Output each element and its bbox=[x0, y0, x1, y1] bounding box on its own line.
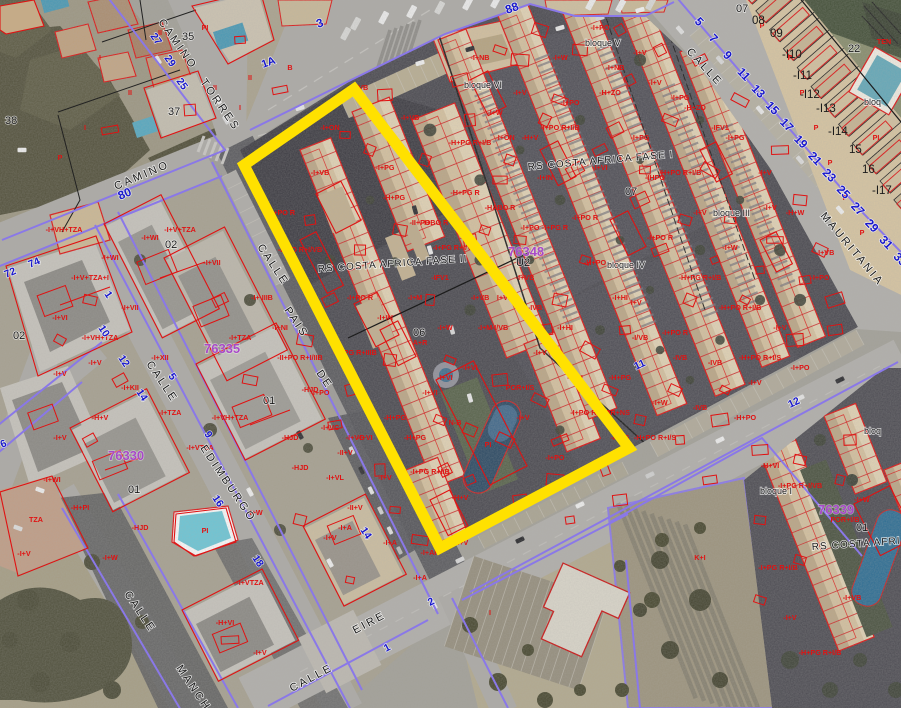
svg-text:-H+PG R+I/B: -H+PG R+I/B bbox=[799, 648, 842, 657]
svg-text:-I+V: -I+V bbox=[533, 348, 547, 357]
svg-text:-H+V: -H+V bbox=[452, 493, 469, 502]
svg-text:-I/VB: -I/VB bbox=[492, 323, 508, 332]
svg-text:TZA: TZA bbox=[29, 515, 43, 524]
svg-text:-I+NB: -I+NB bbox=[471, 53, 490, 62]
svg-text:-I+W: -I+W bbox=[487, 108, 503, 117]
svg-text:-I+V: -I+V bbox=[17, 549, 31, 558]
svg-text:-H+PO R+I/S: -H+PO R+I/S bbox=[634, 433, 677, 442]
svg-text:I: I bbox=[489, 608, 491, 617]
svg-text:-I+VI: -I+VI bbox=[357, 433, 372, 442]
svg-text:76335: 76335 bbox=[204, 341, 240, 356]
svg-text:-I+HI: -I+HI bbox=[612, 293, 628, 302]
svg-text:-H+PG R: -H+PG R bbox=[450, 188, 480, 197]
svg-text:-H+VI: -H+VI bbox=[761, 461, 780, 470]
svg-text:-I+PG: -I+PG bbox=[631, 133, 650, 142]
svg-text:-H+PO R+I/B: -H+PO R+I/B bbox=[719, 303, 762, 312]
svg-text:-I+W: -I+W bbox=[722, 243, 738, 252]
svg-text:16: 16 bbox=[862, 164, 875, 176]
svg-text:-I10: -I10 bbox=[782, 49, 802, 61]
svg-text:-H+PG: -H+PG bbox=[609, 373, 632, 382]
svg-text:-I+PO: -I+PO bbox=[561, 98, 580, 107]
svg-text:bloque I: bloque I bbox=[760, 486, 792, 496]
svg-text:-II+V: -II+V bbox=[337, 448, 353, 457]
svg-text:-I+W: -I+W bbox=[552, 53, 568, 62]
svg-text:-HJD: -HJD bbox=[292, 463, 309, 472]
svg-text:-I+PO R: -I+PO R bbox=[647, 233, 674, 242]
svg-text:02: 02 bbox=[165, 239, 177, 251]
svg-text:-I+VI: -I+VI bbox=[52, 313, 67, 322]
svg-text:-I+V: -I+V bbox=[693, 208, 707, 217]
svg-text:-HJD: -HJD bbox=[302, 385, 319, 394]
svg-text:-I+W: -I+W bbox=[854, 495, 870, 504]
svg-text:-I+W: -I+W bbox=[437, 323, 453, 332]
svg-text:38: 38 bbox=[5, 115, 17, 127]
svg-text:-I+V: -I+V bbox=[513, 88, 527, 97]
svg-text:-I+M: -I+M bbox=[408, 293, 423, 302]
svg-text:-I13: -I13 bbox=[816, 103, 836, 115]
svg-text:-H+PO: -H+PO bbox=[734, 413, 757, 422]
svg-text:-I+PO R: -I+PO R bbox=[662, 328, 689, 337]
svg-text:-I+VB: -I+VB bbox=[311, 168, 330, 177]
svg-text:-I+V+TZA+I: -I+V+TZA+I bbox=[71, 273, 109, 282]
svg-text:06: 06 bbox=[413, 327, 425, 339]
svg-text:-H+ZO: -H+ZO bbox=[599, 88, 621, 97]
svg-text:-I+VB: -I+VB bbox=[401, 113, 420, 122]
svg-text:-I+VI: -I+VI bbox=[462, 363, 477, 372]
svg-text:-I+PG: -I+PG bbox=[671, 93, 690, 102]
svg-text:76348: 76348 bbox=[508, 244, 544, 259]
svg-text:-I+VI: -I+VI bbox=[422, 388, 437, 397]
svg-text:08: 08 bbox=[752, 15, 765, 27]
svg-text:-I+V: -I+V bbox=[53, 433, 67, 442]
svg-text:-I+V: -I+V bbox=[748, 378, 762, 387]
svg-text:-I+PO: -I+PO bbox=[811, 273, 830, 282]
svg-text:-I+BO R: -I+BO R bbox=[422, 218, 449, 227]
svg-text:-I11: -I11 bbox=[793, 70, 812, 82]
svg-text:-I+PO: -I+PO bbox=[521, 223, 540, 232]
svg-text:02: 02 bbox=[13, 330, 25, 342]
svg-text:-I+PG: -I+PG bbox=[376, 163, 395, 172]
svg-text:-I+V: -I+V bbox=[88, 358, 102, 367]
svg-text:bloq: bloq bbox=[864, 426, 881, 436]
svg-text:-I+PG: -I+PG bbox=[726, 133, 745, 142]
svg-text:01: 01 bbox=[128, 484, 140, 496]
svg-text:-I+NI: -I+NI bbox=[272, 323, 288, 332]
svg-text:-I+V: -I+V bbox=[633, 48, 647, 57]
svg-text:-I+V: -I+V bbox=[758, 168, 772, 177]
svg-text:-I+W: -I+W bbox=[652, 398, 668, 407]
svg-text:I: I bbox=[84, 123, 86, 132]
svg-text:K+I: K+I bbox=[694, 553, 705, 562]
svg-text:-H+PG: -H+PG bbox=[384, 413, 407, 422]
svg-text:-I+V+TZA: -I+V+TZA bbox=[164, 225, 196, 234]
svg-text:-H+PO R+I/B: -H+PO R+I/B bbox=[659, 168, 702, 177]
svg-text:-I+ IIIB: -I+ IIIB bbox=[251, 293, 273, 302]
svg-text:07: 07 bbox=[736, 3, 748, 15]
svg-text:bloque VI: bloque VI bbox=[464, 80, 502, 90]
svg-text:bloque III: bloque III bbox=[713, 208, 750, 218]
svg-text:PI: PI bbox=[873, 133, 880, 142]
svg-text:bloq: bloq bbox=[864, 97, 881, 107]
svg-text:35: 35 bbox=[182, 31, 194, 43]
svg-text:-I+PG R+I/B: -I+PG R+I/B bbox=[410, 467, 450, 476]
svg-text:bloque V: bloque V bbox=[585, 38, 621, 48]
svg-text:-H+PG R+I/B: -H+PG R+I/B bbox=[679, 273, 722, 282]
svg-text:-I+VH+TZA: -I+VH+TZA bbox=[46, 225, 83, 234]
svg-text:-II+PO R+I/IIB: -II+PO R+I/IIB bbox=[277, 353, 323, 362]
svg-text:-I12: -I12 bbox=[800, 89, 820, 101]
svg-text:-I+VB: -I+VB bbox=[843, 593, 862, 602]
svg-text:-H+PG R+I/B: -H+PG R+I/B bbox=[449, 138, 492, 147]
svg-text:-I+KII: -I+KII bbox=[121, 383, 139, 392]
svg-text:09: 09 bbox=[770, 28, 783, 40]
svg-text:-I+WI: -I+WI bbox=[43, 475, 60, 484]
svg-text:-H+PI: -H+PI bbox=[71, 503, 90, 512]
svg-text:-IVB: -IVB bbox=[673, 353, 687, 362]
svg-text:-H+PO: -H+PO bbox=[584, 258, 607, 267]
svg-text:I: I bbox=[239, 103, 241, 112]
svg-text:-H+V: -H+V bbox=[92, 413, 109, 422]
svg-text:-I+IN: -I+IN bbox=[377, 313, 393, 322]
svg-text:15: 15 bbox=[849, 144, 862, 156]
svg-text:-IVB: -IVB bbox=[693, 403, 707, 412]
svg-text:-IFV1: -IFV1 bbox=[431, 273, 449, 282]
svg-text:-I+PO: -I+PO bbox=[791, 363, 810, 372]
svg-text:-I+V: -I+V bbox=[253, 648, 267, 657]
svg-text:-I+VII: -I+VII bbox=[121, 303, 138, 312]
svg-text:22: 22 bbox=[848, 43, 860, 55]
svg-text:37: 37 bbox=[168, 106, 180, 118]
svg-text:-I+V: -I+V bbox=[628, 298, 642, 307]
svg-text:-I+A: -I+A bbox=[338, 523, 352, 532]
svg-text:-IFV1: -IFV1 bbox=[711, 123, 729, 132]
svg-text:-I+VII: -I+VII bbox=[203, 258, 220, 267]
svg-text:PI: PI bbox=[485, 440, 492, 449]
svg-text:-I+WI: -I+WI bbox=[141, 233, 158, 242]
svg-text:-H+PO R+I/S: -H+PO R+I/S bbox=[739, 353, 782, 362]
svg-text:P: P bbox=[58, 153, 63, 162]
svg-text:-I+VH+TZA: -I+VH+TZA bbox=[212, 413, 249, 422]
svg-text:-HJD: -HJD bbox=[132, 523, 149, 532]
svg-text:N-B: N-B bbox=[449, 418, 462, 427]
svg-text:76339: 76339 bbox=[818, 502, 854, 517]
svg-text:-H+ZO: -H+ZO bbox=[684, 103, 706, 112]
svg-text:-I+TZA: -I+TZA bbox=[159, 408, 182, 417]
svg-text:-I+V: -I+V bbox=[783, 613, 797, 622]
svg-text:-I14: -I14 bbox=[828, 126, 848, 138]
svg-text:-H+W: -H+W bbox=[786, 208, 805, 217]
svg-text:POR+I/S: POR+I/S bbox=[506, 383, 535, 392]
svg-text:-I+V: -I+V bbox=[323, 533, 337, 542]
svg-text:-I+PG R: -I+PG R bbox=[542, 223, 569, 232]
svg-text:-I+VB: -I+VB bbox=[471, 293, 490, 302]
svg-text:01: 01 bbox=[856, 522, 868, 534]
svg-text:-I+VB: -I+VB bbox=[516, 273, 535, 282]
svg-text:-IVB: -IVB bbox=[708, 358, 722, 367]
svg-text:II: II bbox=[128, 88, 132, 97]
svg-text:-I+W: -I+W bbox=[102, 553, 118, 562]
svg-text:-I+HI: -I+HI bbox=[557, 323, 573, 332]
svg-text:-I+M: -I+M bbox=[478, 323, 493, 332]
svg-text:-I+VTZA: -I+VTZA bbox=[236, 578, 263, 587]
svg-text:-I+PO: -I+PO bbox=[591, 23, 610, 32]
svg-text:-I+WI: -I+WI bbox=[101, 253, 118, 262]
svg-text:-I17: -I17 bbox=[872, 185, 892, 197]
svg-text:-HJD: -HJD bbox=[282, 433, 299, 442]
svg-text:-I+A: -I+A bbox=[413, 573, 427, 582]
svg-text:B: B bbox=[287, 63, 292, 72]
svg-text:-I+VI: -I+VI bbox=[437, 373, 452, 382]
svg-text:-I+PG R+I/B: -I+PG R+I/B bbox=[758, 563, 798, 572]
svg-text:-I+PO R: -I+PO R bbox=[347, 293, 374, 302]
svg-text:-I+PO R+I/B: -I+PO R+I/B bbox=[540, 123, 580, 132]
svg-text:01: 01 bbox=[263, 395, 275, 407]
svg-text:-H+PG: -H+PG bbox=[383, 193, 406, 202]
svg-text:II: II bbox=[248, 73, 252, 82]
svg-text:-I+V: -I+V bbox=[763, 203, 777, 212]
svg-text:-II+V: -II+V bbox=[347, 503, 363, 512]
svg-text:PI: PI bbox=[202, 23, 209, 32]
svg-text:-I+ON: -I+ON bbox=[495, 133, 514, 142]
svg-text:-I+VL: -I+VL bbox=[326, 473, 344, 482]
svg-text:-I+A: -I+A bbox=[383, 538, 397, 547]
svg-text:-I+V: -I+V bbox=[378, 473, 392, 482]
svg-text:76330: 76330 bbox=[108, 448, 144, 463]
svg-text:-I+V: -I+V bbox=[773, 323, 787, 332]
svg-text:I: I bbox=[99, 53, 101, 62]
svg-text:-H+PG: -H+PG bbox=[404, 433, 427, 442]
svg-text:-IHPO: -IHPO bbox=[645, 173, 665, 182]
svg-text:-I+PO R: -I+PO R bbox=[572, 213, 599, 222]
svg-text:-I+VB: -I+VB bbox=[816, 248, 835, 257]
svg-text:A+R: A+R bbox=[413, 338, 428, 347]
svg-text:PI: PI bbox=[202, 526, 209, 535]
svg-text:-I/VB: -I/VB bbox=[632, 333, 648, 342]
svg-text:-I+V: -I+V bbox=[516, 413, 530, 422]
svg-text:-I+VC: -I+VC bbox=[321, 423, 340, 432]
svg-text:-I+IN: -I+IN bbox=[537, 173, 553, 182]
svg-text:P: P bbox=[814, 123, 819, 132]
svg-text:TEN: TEN bbox=[877, 37, 891, 46]
svg-text:-H+VI: -H+VI bbox=[216, 618, 235, 627]
svg-text:-I+NB: -I+NB bbox=[606, 63, 625, 72]
svg-text:bloque IV: bloque IV bbox=[607, 260, 645, 270]
svg-text:P: P bbox=[860, 228, 865, 237]
svg-text:-H+V: -H+V bbox=[522, 133, 539, 142]
svg-text:-I+V: -I+V bbox=[648, 78, 662, 87]
svg-text:-I+ON: -I+ON bbox=[320, 123, 339, 132]
svg-text:-I+V: -I+V bbox=[53, 369, 67, 378]
svg-text:-I+PO: -I+PO bbox=[546, 453, 565, 462]
svg-text:-HABO R: -HABO R bbox=[485, 203, 517, 212]
svg-text:07: 07 bbox=[625, 186, 637, 198]
